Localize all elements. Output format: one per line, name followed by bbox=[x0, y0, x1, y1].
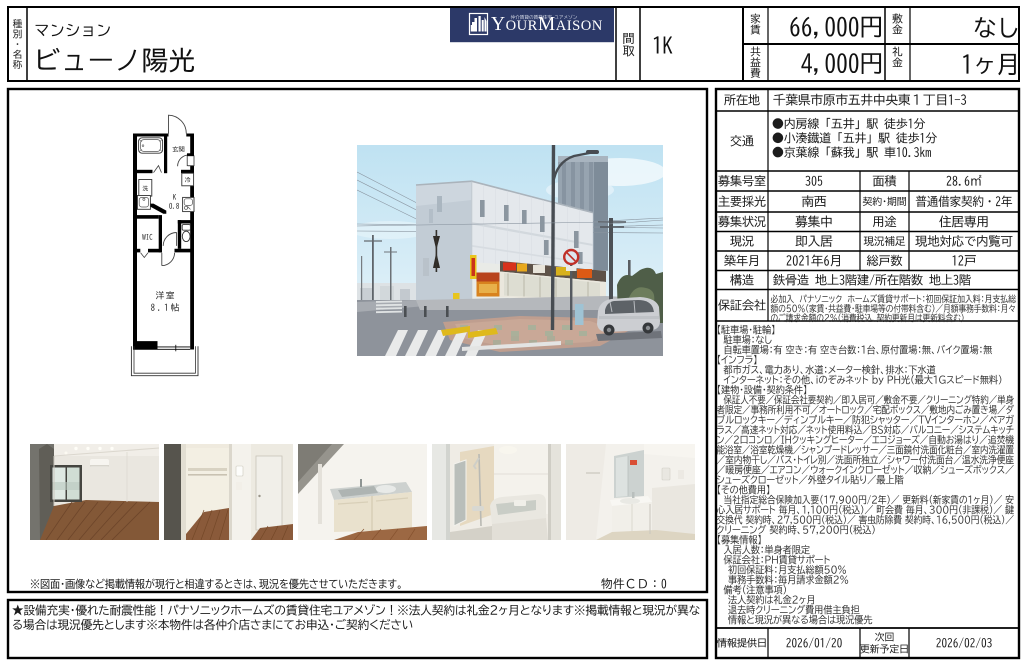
svg-text:YOURMAISON: YOURMAISON bbox=[491, 14, 603, 35]
